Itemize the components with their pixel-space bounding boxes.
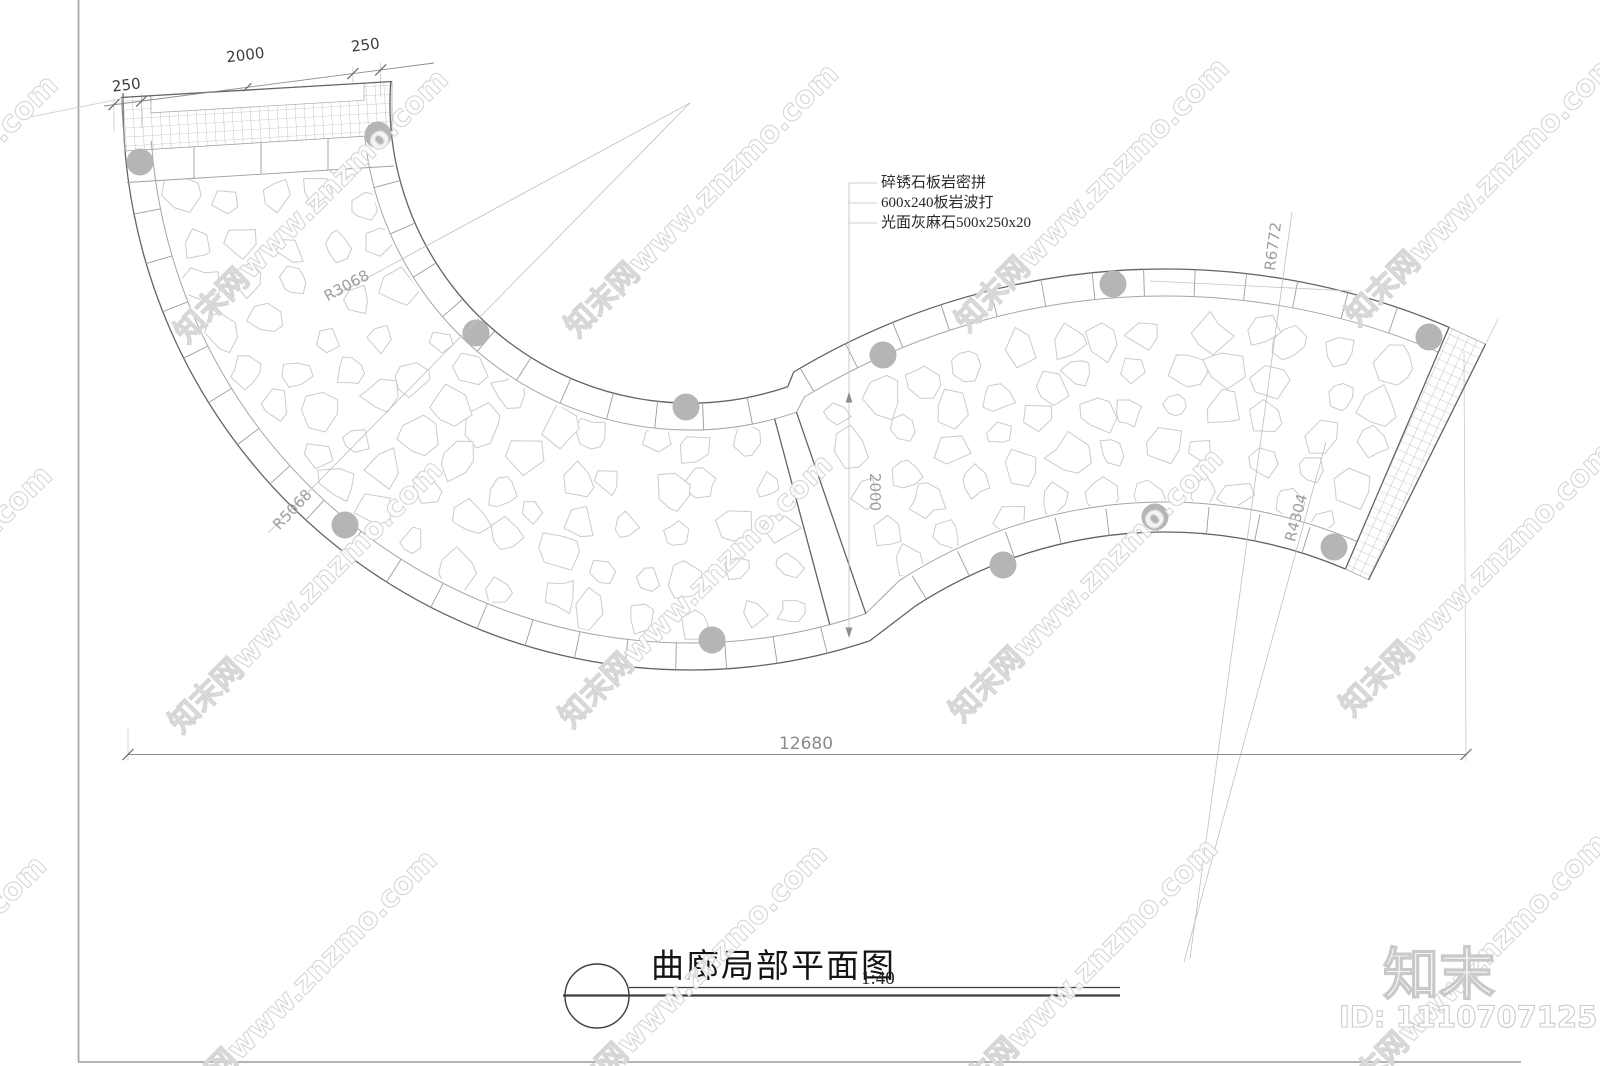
annotation-2: 600x240板岩波打 [881,193,994,211]
drawing-scale: 1:40 [861,968,895,989]
sheet-frame [78,0,1521,1062]
dim-cap-left-label: 250 [111,74,142,95]
drawing-id: ID: 1110707125 [1339,1000,1597,1034]
watermark-text: 知末网www.znzmo.com [1339,45,1600,333]
watermark-text: 知末网www.znzmo.com [0,458,60,746]
znzmo-logo: 知末 [1383,943,1495,1008]
watermark-text: 知末网www.znzmo.com [558,57,846,345]
dim-cap-mid-label: 2000 [225,44,265,67]
cad-sheet: 250 2000 250 12680 2000 R3068 R5068 R677… [0,0,1600,1066]
column [127,149,154,176]
column [1321,534,1348,561]
annotation-1: 碎锈石板岩密拼 [881,173,986,191]
column [699,627,726,654]
annotation-3: 光面灰麻石500x250x20 [881,214,1031,231]
radius-label-r6772: R6772 [1261,221,1285,272]
material-annotations: 碎锈石板岩密拼 600x240板岩波打 光面灰麻石500x250x20 [881,173,1031,231]
column [990,552,1017,579]
watermark-text: 知末网www.znzmo.com [0,68,65,356]
dim-overall-label: 12680 [779,734,833,754]
column [1100,271,1127,298]
watermark-text: 知末网www.znzmo.com [0,848,54,1066]
dim-corridor-width-label: 2000 [866,473,884,511]
column [673,394,700,421]
radius-label-r5068: R5068 [269,486,316,534]
cad-drawing: 250 2000 250 12680 2000 R3068 R5068 R677… [0,0,1600,1066]
watermark-text: 知末网www.znzmo.com [937,832,1225,1066]
column [1416,324,1443,351]
watermark-text: 知末网www.znzmo.com [157,843,445,1066]
column [870,342,897,369]
column [463,320,490,347]
site-branding: 知末 ID: 1110707125 [1339,943,1597,1034]
dim-cap-right-label: 250 [350,34,381,55]
watermark-layer: 知末网www.znzmo.com知末网www.znzmo.com知末网www.z… [0,0,1600,1066]
watermark-text: 知末网www.znzmo.com [1333,436,1600,724]
